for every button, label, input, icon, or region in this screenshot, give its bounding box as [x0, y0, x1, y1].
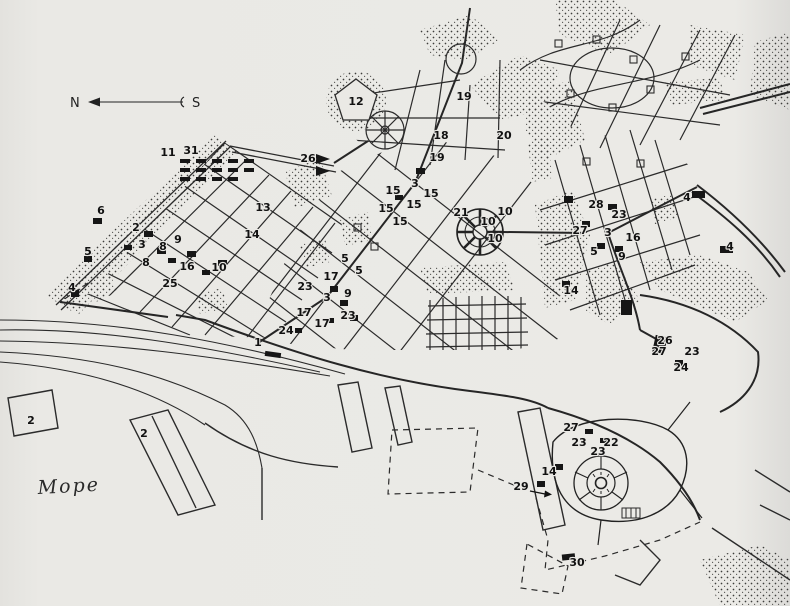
- map-marker-28: 28: [588, 198, 603, 211]
- map-marker-24: 24: [673, 361, 689, 374]
- map-marker-24: 24: [278, 324, 294, 337]
- map-marker-4: 4: [683, 191, 691, 204]
- compass-icon: N S: [70, 96, 200, 111]
- map-marker-23: 23: [297, 280, 312, 293]
- map-marker-2: 2: [132, 221, 140, 234]
- map-marker-12: 12: [348, 95, 363, 108]
- map-marker-14: 14: [244, 228, 260, 241]
- map-marker-10: 10: [497, 205, 513, 218]
- map-marker-4: 4: [68, 281, 76, 294]
- map-marker-15: 15: [392, 215, 407, 228]
- hatched-depot: [622, 508, 640, 518]
- map-marker-29: 29: [513, 480, 528, 493]
- sea-label: Море: [36, 474, 100, 499]
- map-marker-15: 15: [385, 184, 400, 197]
- railway-lines: [0, 320, 345, 468]
- map-marker-15: 15: [423, 187, 438, 200]
- map-marker-14: 14: [541, 465, 557, 478]
- map-marker-16: 16: [179, 260, 195, 273]
- compass-south-label: S: [192, 96, 200, 111]
- map-marker-10: 10: [487, 232, 503, 245]
- map-marker-19: 19: [456, 90, 471, 103]
- map-marker-27: 27: [572, 224, 587, 237]
- map-marker-4: 4: [726, 240, 734, 253]
- marker-29-arrow: [530, 491, 552, 498]
- map-marker-13: 13: [255, 201, 270, 214]
- harbor-piers: [8, 382, 790, 585]
- map-marker-11: 11: [160, 146, 175, 159]
- map-marker-23: 23: [571, 436, 586, 449]
- map-marker-9: 9: [618, 250, 626, 263]
- map-marker-8: 8: [142, 256, 150, 269]
- city-plan-map: N S Море 1131261219182019623895841610251…: [0, 0, 790, 606]
- map-marker-25: 25: [162, 277, 177, 290]
- map-marker-2: 2: [140, 427, 148, 440]
- map-marker-5: 5: [341, 252, 349, 265]
- map-marker-5: 5: [590, 245, 598, 258]
- map-marker-10: 10: [211, 261, 227, 274]
- map-marker-1: 1: [254, 336, 262, 349]
- map-marker-17: 17: [314, 317, 329, 330]
- map-marker-3: 3: [323, 291, 331, 304]
- wheel-plaza: [366, 111, 404, 149]
- map-marker-5: 5: [355, 264, 363, 277]
- map-markers: 1131261219182019623895841610251314315151…: [27, 90, 734, 569]
- map-marker-23: 23: [684, 345, 699, 358]
- map-marker-10: 10: [480, 215, 496, 228]
- compass-north-label: N: [70, 96, 80, 111]
- map-marker-3: 3: [138, 238, 146, 251]
- map-marker-9: 9: [174, 233, 182, 246]
- map-marker-2: 2: [27, 414, 35, 427]
- map-marker-17: 17: [296, 306, 311, 319]
- map-marker-20: 20: [496, 129, 512, 142]
- map-marker-31: 31: [183, 144, 198, 157]
- map-marker-3: 3: [411, 177, 419, 190]
- map-marker-15: 15: [378, 202, 393, 215]
- map-marker-30: 30: [569, 556, 585, 569]
- map-marker-14: 14: [563, 284, 579, 297]
- map-marker-16: 16: [625, 231, 641, 244]
- map-marker-23: 23: [340, 309, 355, 322]
- map-marker-5: 5: [84, 245, 92, 258]
- map-marker-23: 23: [590, 445, 605, 458]
- map-marker-9: 9: [344, 287, 352, 300]
- map-marker-3: 3: [604, 226, 612, 239]
- map-marker-21: 21: [453, 206, 468, 219]
- map-marker-15: 15: [406, 198, 421, 211]
- map-marker-18: 18: [433, 129, 448, 142]
- map-canvas: N S Море 1131261219182019623895841610251…: [0, 0, 790, 606]
- map-marker-27: 27: [651, 345, 666, 358]
- map-marker-26: 26: [300, 152, 316, 165]
- map-marker-17: 17: [323, 270, 338, 283]
- map-marker-19: 19: [429, 151, 444, 164]
- map-marker-6: 6: [97, 204, 105, 217]
- map-marker-8: 8: [159, 240, 167, 253]
- map-marker-23: 23: [611, 208, 626, 221]
- map-marker-27: 27: [563, 421, 578, 434]
